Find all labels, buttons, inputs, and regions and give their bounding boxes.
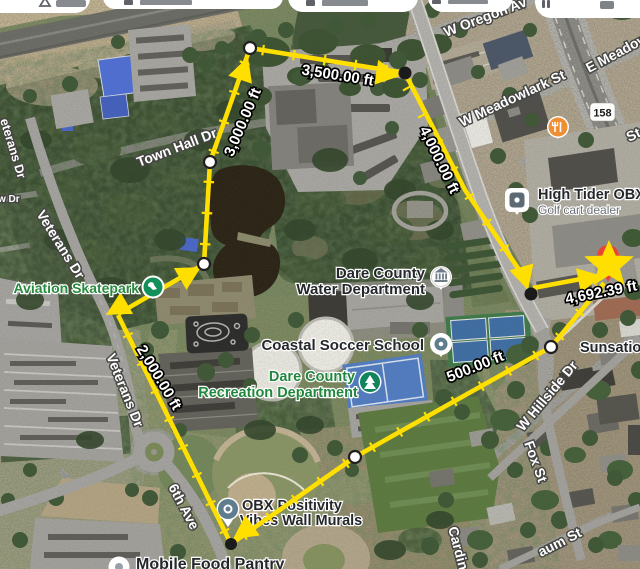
svg-text:158: 158 — [593, 108, 611, 120]
svg-text:Golf cart dealer: Golf cart dealer — [538, 203, 620, 217]
svg-text:High Tider OBX: High Tider OBX — [538, 187, 640, 203]
svg-text:Dare County: Dare County — [336, 265, 426, 282]
svg-text:w Dr: w Dr — [0, 194, 20, 205]
svg-text:Dare County: Dare County — [269, 369, 355, 385]
svg-text:Water Department: Water Department — [296, 281, 425, 298]
svg-text:Coastal Soccer School: Coastal Soccer School — [261, 337, 424, 354]
svg-text:Mobile Food Pantry: Mobile Food Pantry — [136, 556, 285, 569]
svg-text:Recreation Department: Recreation Department — [198, 385, 358, 401]
svg-text:Aviation Skatepark: Aviation Skatepark — [13, 280, 139, 296]
svg-text:Sunsations: Sunsations — [580, 340, 640, 356]
